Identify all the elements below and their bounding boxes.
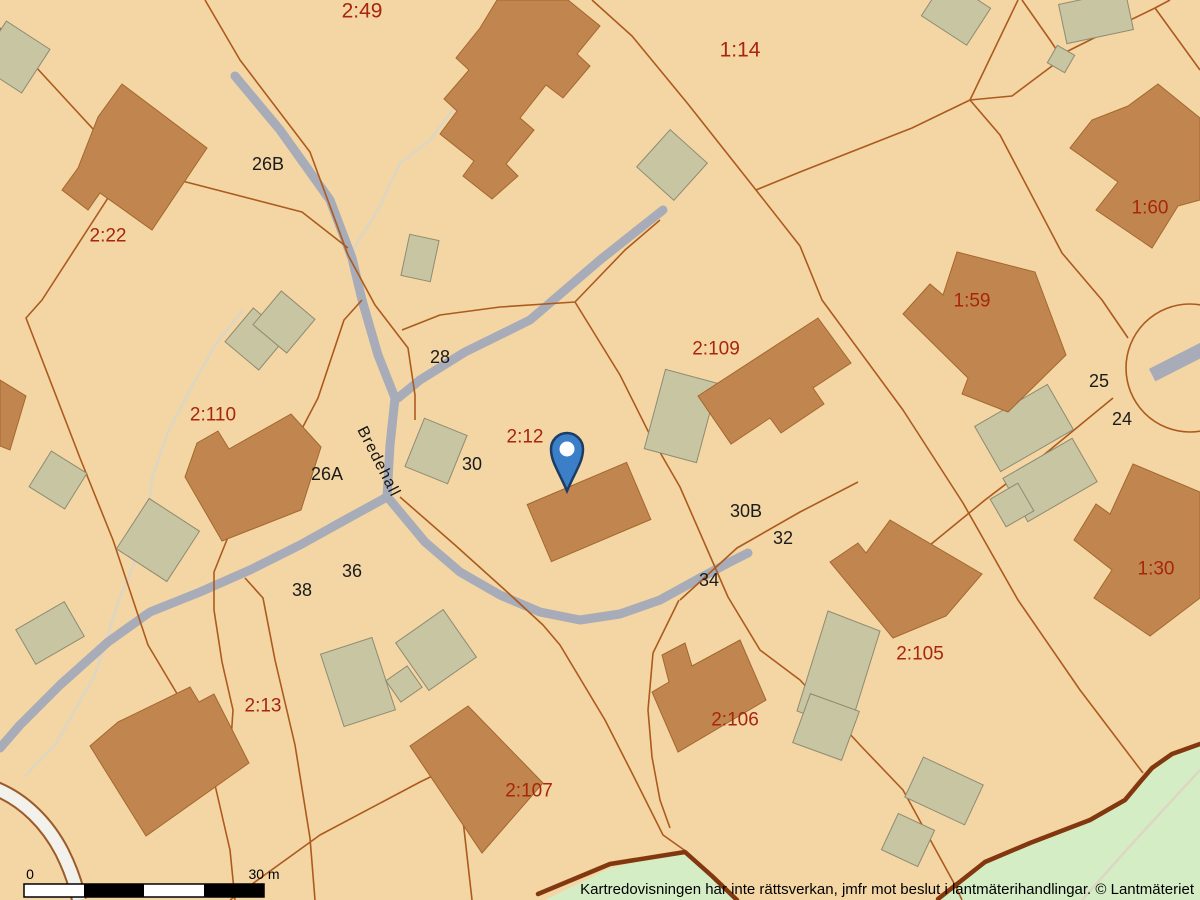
parcel-label-2-109: 2:109 (692, 340, 740, 359)
outbuilding (644, 369, 717, 462)
address-label-36: 36 (342, 562, 362, 580)
parcel-label-2-22: 2:22 (90, 227, 127, 246)
building-1-30 (1074, 464, 1200, 636)
disclaimer-text: Kartredovisningen har inte rättsverkan, … (580, 881, 1194, 898)
address-label-30b: 30B (730, 502, 762, 520)
parcel-label-1-60: 1:60 (1132, 199, 1169, 218)
parcel-label-1-14: 1:14 (720, 40, 761, 61)
building-2-109 (698, 318, 851, 444)
building-2-107 (410, 706, 543, 853)
parcel-label-2-49: 2:49 (342, 1, 383, 22)
outbuilding (637, 130, 708, 201)
address-label-28: 28 (430, 348, 450, 366)
address-label-24: 24 (1112, 410, 1132, 428)
scale-start-label: 0 (26, 866, 34, 882)
outbuilding (401, 234, 439, 281)
building-2-106 (652, 640, 766, 752)
address-label-26a: 26A (311, 465, 343, 483)
scale-bar (24, 884, 264, 897)
outbuilding (29, 451, 87, 509)
outbuilding (921, 0, 990, 45)
outbuilding (321, 638, 396, 727)
parcel-label-2-107: 2:107 (505, 782, 553, 801)
address-label-26b: 26B (252, 155, 284, 173)
parcel-label-2-13: 2:13 (245, 697, 282, 716)
building-2-12 (527, 462, 651, 561)
building-2-13 (90, 687, 249, 836)
outbuilding (881, 813, 934, 866)
location-pin-icon[interactable] (551, 433, 583, 491)
parcel-label-2-106: 2:106 (711, 711, 759, 730)
address-label-34: 34 (699, 571, 719, 589)
road-stub (1149, 343, 1200, 382)
building-2-49 (440, 0, 600, 199)
road-northeast (398, 210, 663, 398)
building-1-60 (1070, 84, 1200, 248)
map-viewport: 2:491:142:221:601:592:1102:1092:121:302:… (0, 0, 1200, 900)
building-2-110 (185, 414, 321, 541)
parcel-label-2-105: 2:105 (896, 645, 944, 664)
outbuilding (0, 21, 50, 93)
parcel-label-1-59: 1:59 (954, 292, 991, 311)
parcel-label-2-12: 2:12 (507, 428, 544, 447)
outbuilding (117, 499, 200, 582)
white-road (0, 788, 79, 900)
building-2-22 (62, 84, 207, 230)
scale-end-label: 30 m (248, 866, 279, 882)
address-label-38: 38 (292, 581, 312, 599)
address-label-30: 30 (462, 455, 482, 473)
parcel-label-1-30: 1:30 (1138, 560, 1175, 579)
outbuilding (16, 602, 84, 665)
outbuilding (1059, 0, 1134, 44)
parcel-label-2-110: 2:110 (190, 406, 236, 425)
address-label-25: 25 (1089, 372, 1109, 390)
outbuilding (405, 418, 467, 483)
map-canvas[interactable] (0, 0, 1200, 900)
address-label-32: 32 (773, 529, 793, 547)
building-edge-west (0, 380, 26, 450)
